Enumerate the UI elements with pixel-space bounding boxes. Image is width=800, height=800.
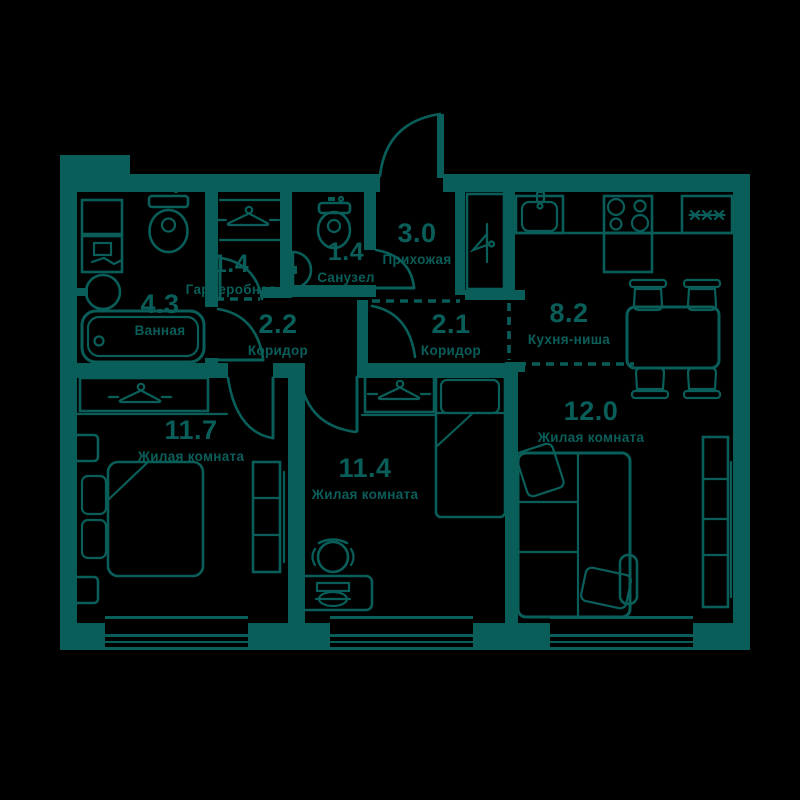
toilet-icon bbox=[149, 188, 188, 252]
room-name: Коридор bbox=[421, 344, 481, 358]
room-label-hallway: 3.0 Прихожая bbox=[382, 220, 451, 267]
room-area: 1.4 bbox=[186, 252, 277, 277]
room-label-kitchen: 8.2 Кухня-ниша bbox=[528, 300, 610, 347]
room-area: 2.2 bbox=[248, 311, 308, 338]
room-label-living-2: 11.4 Жилая комната bbox=[312, 455, 419, 502]
shelving-icon bbox=[703, 437, 731, 607]
room-label-wardrobe: 1.4 Гардеробная bbox=[186, 252, 277, 297]
room-area: 11.4 bbox=[312, 455, 419, 482]
room-label-living-1: 11.7 Жилая комната bbox=[138, 417, 245, 464]
room-label-bathroom: 4.3 Ванная bbox=[135, 291, 186, 338]
single-bed-icon bbox=[436, 374, 505, 517]
closet-living-1-icon bbox=[66, 378, 227, 414]
room-name: Гардеробная bbox=[186, 283, 277, 297]
desk-icon bbox=[295, 576, 372, 610]
room-area: 4.3 bbox=[135, 291, 186, 318]
room-area: 11.7 bbox=[138, 417, 245, 444]
dining-table-icon bbox=[627, 280, 720, 398]
room-label-living-3: 12.0 Жилая комната bbox=[538, 398, 645, 445]
dresser-icon bbox=[253, 462, 284, 572]
wardrobe-shelf-icon bbox=[217, 200, 290, 240]
corner-sofa-icon bbox=[515, 442, 637, 617]
room-area: 8.2 bbox=[528, 300, 610, 327]
room-area: 2.1 bbox=[421, 311, 481, 338]
office-chair-icon bbox=[313, 540, 354, 573]
entrance-door-icon bbox=[380, 114, 444, 178]
stove-icon bbox=[604, 196, 652, 233]
room-name: Жилая комната bbox=[312, 488, 419, 502]
room-name: Прихожая bbox=[382, 253, 451, 267]
round-sink-icon bbox=[77, 275, 120, 309]
fridge-icon bbox=[682, 196, 732, 233]
room-label-corridor-b: 2.1 Коридор bbox=[421, 311, 481, 358]
mirror-cabinet-icon bbox=[467, 194, 504, 289]
floor-plan-drawing bbox=[0, 0, 800, 800]
floor-plan: 4.3 Ванная 1.4 Гардеробная 1.4 Санузел 3… bbox=[0, 0, 800, 800]
closet-living-2-icon bbox=[362, 376, 436, 415]
room-name: Кухня-ниша bbox=[528, 333, 610, 347]
room-area: 3.0 bbox=[382, 220, 451, 247]
kitchen-counter-icon bbox=[516, 233, 732, 272]
room-name: Санузел bbox=[317, 271, 375, 285]
room-label-wc: 1.4 Санузел bbox=[317, 240, 375, 285]
double-bed-icon bbox=[82, 462, 203, 576]
room-label-corridor-a: 2.2 Коридор bbox=[248, 311, 308, 358]
washing-machine-icon bbox=[82, 236, 122, 272]
door-corridor-icon bbox=[372, 306, 415, 357]
room-name: Жилая комната bbox=[538, 431, 645, 445]
room-area: 1.4 bbox=[317, 240, 375, 265]
room-name: Ванная bbox=[135, 324, 186, 338]
door-living-2-icon bbox=[300, 377, 357, 432]
bathroom-cabinet-icon bbox=[82, 200, 122, 234]
room-name: Жилая комната bbox=[138, 450, 245, 464]
room-area: 12.0 bbox=[538, 398, 645, 425]
room-name: Коридор bbox=[248, 344, 308, 358]
kitchen-sink-icon bbox=[516, 192, 563, 233]
